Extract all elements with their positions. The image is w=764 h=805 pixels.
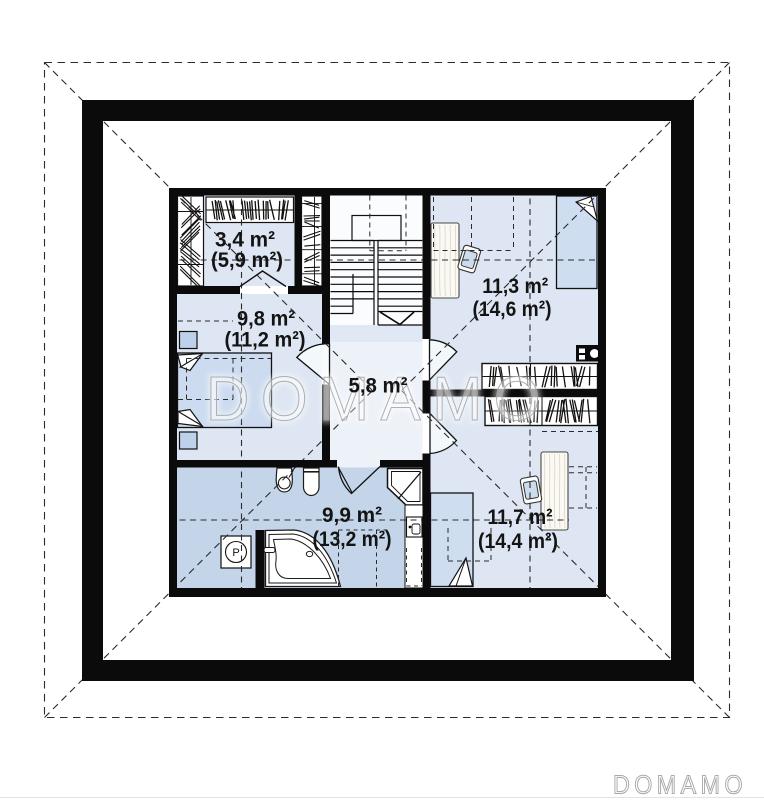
svg-text:9,9 m²: 9,9 m² [322, 503, 382, 527]
svg-text:11,3 m²: 11,3 m² [482, 274, 548, 298]
svg-text:DOMAMO: DOMAMO [613, 770, 747, 800]
svg-text:11,7 m²: 11,7 m² [488, 505, 553, 529]
svg-text:(14,6 m²): (14,6 m²) [473, 297, 552, 321]
svg-text:(11,2 m²): (11,2 m²) [225, 328, 306, 352]
svg-text:(5,9 m²): (5,9 m²) [211, 248, 283, 272]
svg-text:(14,4 m²): (14,4 m²) [478, 529, 558, 553]
svg-text:(13,2 m²): (13,2 m²) [313, 527, 392, 551]
svg-text:P: P [232, 547, 239, 559]
svg-text:5,8 m²: 5,8 m² [349, 374, 408, 398]
